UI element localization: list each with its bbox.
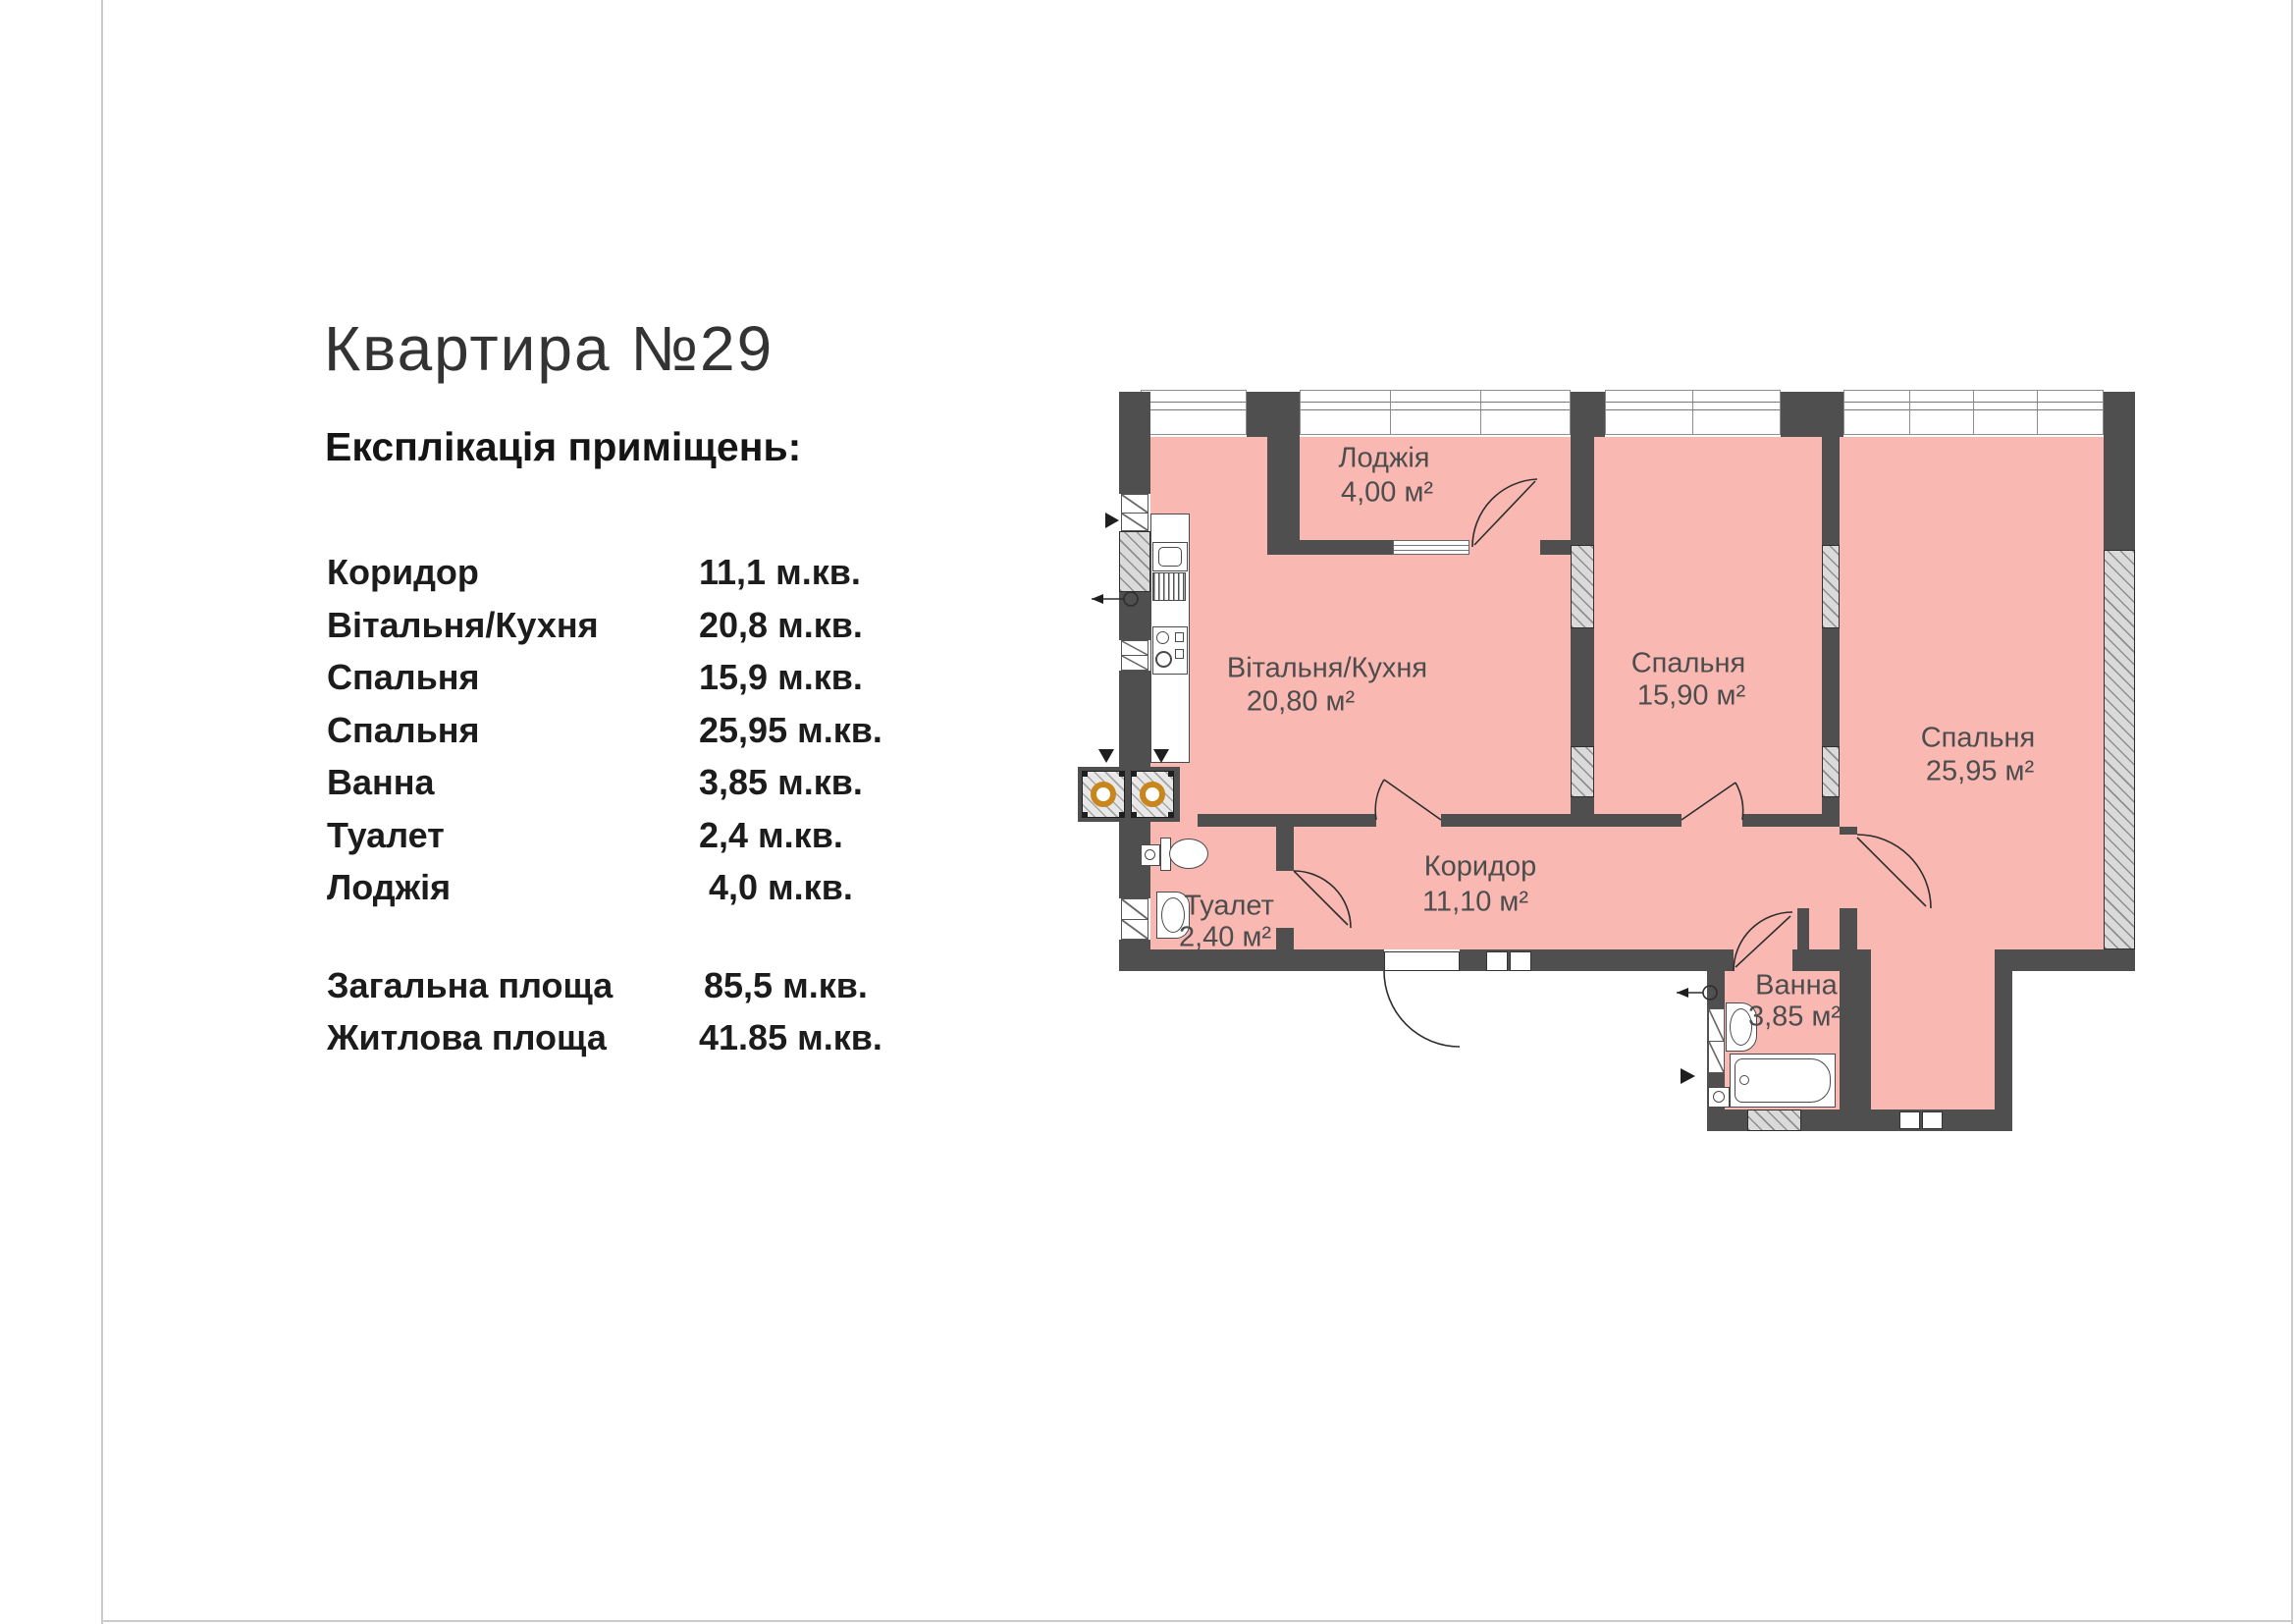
- room-area: 2,4 м.кв.: [699, 815, 843, 856]
- room-name: Спальня: [327, 710, 480, 751]
- living-door-arc: [1375, 780, 1384, 820]
- room-label-loggia: Лоджія: [1339, 443, 1430, 475]
- page-title: Квартира №29: [324, 312, 774, 385]
- summary-area: 85,5 м.кв.: [704, 965, 868, 1006]
- summary-area: 41.85 м.кв.: [699, 1017, 882, 1058]
- vent-corner-dot: [1119, 812, 1124, 817]
- room-area: 4,0 м.кв.: [709, 867, 853, 908]
- summary-name: Загальна площа: [327, 965, 613, 1006]
- vent-corner-dot: [1168, 812, 1173, 817]
- room-name: Туалет: [327, 815, 445, 856]
- vent-corner-dot: [1168, 772, 1173, 777]
- living-door-leaf: [1384, 780, 1441, 820]
- room-area-bathroom: 3,85 м²: [1748, 1001, 1841, 1034]
- plumbing-riser-icon: [1703, 986, 1717, 1000]
- bedroom2-door-leaf: [1857, 838, 1926, 906]
- room-area-living-kitchen: 20,80 м²: [1247, 686, 1355, 719]
- room-area: 11,1 м.кв.: [699, 552, 861, 593]
- bedroom2-door-arc: [1857, 835, 1931, 908]
- room-label-living-kitchen: Вітальня/Кухня: [1227, 653, 1427, 685]
- room-name: Лоджія: [327, 867, 451, 908]
- arrow-head-icon: [1092, 594, 1103, 604]
- room-name: Ванна: [327, 762, 435, 803]
- room-area: 15,9 м.кв.: [699, 657, 863, 698]
- vent-marker-icon: [1153, 749, 1169, 763]
- room-name: Коридор: [327, 552, 479, 593]
- room-area-bedroom-2: 25,95 м²: [1926, 756, 2034, 788]
- summary-name: Житлова площа: [327, 1017, 607, 1058]
- bedroom1-door-arc: [1735, 783, 1743, 820]
- room-label-toilet: Туалет: [1184, 891, 1274, 923]
- vent-corner-dot: [1132, 772, 1137, 777]
- page-subtitle: Експлікація приміщень:: [325, 424, 801, 470]
- room-area: 3,85 м.кв.: [699, 762, 863, 803]
- arrow-head-icon: [1677, 988, 1688, 998]
- toilet-door-leaf: [1294, 871, 1348, 925]
- vent-corner-dot: [1119, 772, 1124, 777]
- vent-corner-dot: [1083, 812, 1088, 817]
- room-area-loggia: 4,00 м²: [1341, 477, 1433, 510]
- room-area: 25,95 м.кв.: [699, 710, 882, 751]
- entrance-door-arc: [1384, 971, 1460, 1047]
- room-label-bedroom-2: Спальня: [1921, 723, 2036, 755]
- section-marker-icon: [1681, 1068, 1695, 1084]
- vent-corner-dot: [1132, 812, 1137, 817]
- sheet-border-left: [101, 0, 103, 1624]
- room-name: Вітальня/Кухня: [327, 605, 599, 646]
- room-label-bedroom-1: Спальня: [1631, 648, 1746, 680]
- floor-plan: Лоджія 4,00 м² Вітальня/Кухня 20,80 м² С…: [1070, 388, 2184, 1154]
- vent-marker-icon: [1098, 749, 1114, 763]
- room-explication-list: Коридор 11,1 м.кв. Вітальня/Кухня 20,8 м…: [327, 552, 935, 1082]
- sheet-border-bottom: [101, 1620, 2293, 1622]
- room-area-bedroom-1: 15,90 м²: [1637, 680, 1745, 713]
- vent-corner-dot: [1083, 772, 1088, 777]
- bedroom1-door-leaf: [1682, 783, 1735, 820]
- room-area-toilet: 2,40 м²: [1179, 922, 1271, 954]
- bathroom-door-leaf: [1735, 916, 1790, 967]
- room-area-corridor: 11,10 м²: [1422, 887, 1528, 919]
- room-label-bathroom: Ванна: [1755, 970, 1838, 1002]
- room-name: Спальня: [327, 657, 480, 698]
- plumbing-riser-icon: [1124, 592, 1138, 606]
- sheet-border-right: [2291, 0, 2293, 1624]
- room-label-corridor: Коридор: [1424, 851, 1537, 884]
- room-area: 20,8 м.кв.: [699, 605, 863, 646]
- loggia-door-leaf: [1474, 481, 1535, 545]
- section-marker-icon: [1105, 513, 1119, 528]
